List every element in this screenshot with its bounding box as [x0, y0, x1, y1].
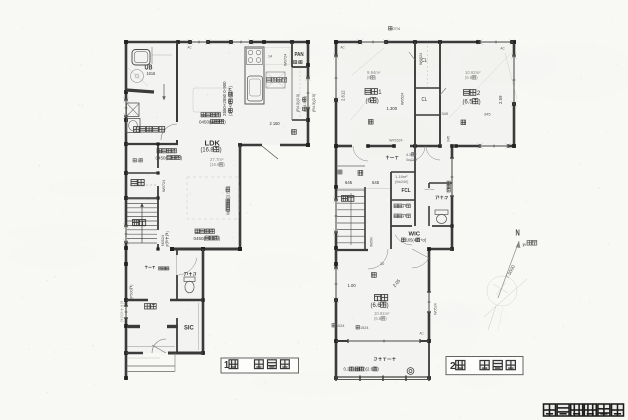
- svg-text:PAN: PAN: [295, 52, 304, 58]
- svg-text:W0724: W0724: [161, 179, 166, 192]
- svg-text:W0524: W0524: [399, 92, 404, 105]
- svg-text:AC: AC: [420, 332, 424, 336]
- svg-text:(16.8: (16.8: [210, 162, 220, 167]
- svg-text:0w240: 0w240: [406, 157, 418, 162]
- svg-text:0.2: 0.2: [344, 367, 351, 372]
- svg-text:): ): [479, 99, 481, 105]
- svg-text:645: 645: [345, 180, 353, 185]
- svg-text:(R4.5)(3.5): (R4.5)(3.5): [295, 93, 300, 112]
- svg-text:(6.6: (6.6: [371, 303, 382, 309]
- svg-text:W#1624: W#1624: [389, 139, 403, 143]
- svg-text:1: 1: [378, 89, 382, 96]
- svg-text:1024: 1024: [336, 323, 345, 328]
- svg-text:2: 2: [450, 360, 456, 372]
- svg-text:AC: AC: [501, 47, 505, 51]
- svg-text:345: 345: [442, 111, 449, 116]
- svg-text:(6.6: (6.6: [465, 75, 473, 80]
- svg-text:CL: CL: [422, 97, 428, 103]
- svg-text:N: N: [516, 229, 520, 238]
- svg-text:0450(: 0450(: [199, 119, 211, 124]
- svg-text:)(2.6: )(2.6: [364, 367, 373, 372]
- svg-text:1524: 1524: [360, 325, 369, 330]
- svg-text:W0524: W0524: [434, 303, 438, 315]
- svg-text:345: 345: [484, 111, 491, 116]
- svg-text:(P500: (P500: [130, 290, 134, 300]
- svg-text:): ): [387, 303, 389, 309]
- svg-text:): ): [220, 147, 222, 153]
- svg-text:(P: (P: [166, 243, 170, 247]
- svg-text:1616: 1616: [147, 71, 156, 76]
- svg-text:645: 645: [372, 180, 380, 185]
- svg-text:0450(: 0450(: [156, 155, 168, 160]
- svg-text:(3.5: (3.5: [225, 191, 230, 199]
- svg-text:2 150: 2 150: [270, 121, 281, 126]
- svg-text:(6.6: (6.6: [374, 316, 382, 321]
- svg-text:+α): +α): [420, 237, 427, 242]
- svg-text:105(4: 105(4: [406, 237, 417, 242]
- svg-text:30: 30: [380, 261, 385, 266]
- svg-text:N0524: N0524: [160, 234, 165, 246]
- svg-text:1.00: 1.00: [348, 283, 357, 288]
- svg-text:1.300: 1.300: [387, 106, 398, 111]
- svg-text:SIC: SIC: [184, 325, 194, 331]
- svg-text:WIC: WIC: [409, 231, 421, 237]
- svg-text:W0724: W0724: [282, 53, 287, 66]
- svg-text:AC: AC: [341, 46, 345, 50]
- svg-text:): ): [377, 98, 379, 104]
- svg-text:345: 345: [447, 136, 451, 142]
- svg-text:2550+2550 0-900: 2550+2550 0-900: [222, 81, 227, 116]
- svg-text:(R4.9)(3.5): (R4.9)(3.5): [311, 93, 316, 112]
- svg-text:W0524: W0524: [418, 52, 423, 65]
- svg-text:W65M: W65M: [370, 237, 374, 247]
- svg-text:(0w240): (0w240): [395, 179, 409, 184]
- svg-text:07/4: 07/4: [393, 26, 401, 31]
- svg-text:2.59: 2.59: [498, 95, 503, 104]
- svg-text:2.612: 2.612: [341, 90, 346, 101]
- svg-text:W: W: [225, 211, 230, 215]
- svg-text:2: 2: [477, 90, 481, 97]
- svg-text:(16.8: (16.8: [201, 147, 215, 153]
- svg-text:7.5000: 7.5000: [505, 264, 517, 280]
- svg-text:0450(: 0450(: [194, 236, 206, 241]
- svg-text:FCL: FCL: [402, 188, 412, 194]
- svg-text:AC: AC: [188, 46, 192, 50]
- svg-text:14: 14: [268, 53, 273, 58]
